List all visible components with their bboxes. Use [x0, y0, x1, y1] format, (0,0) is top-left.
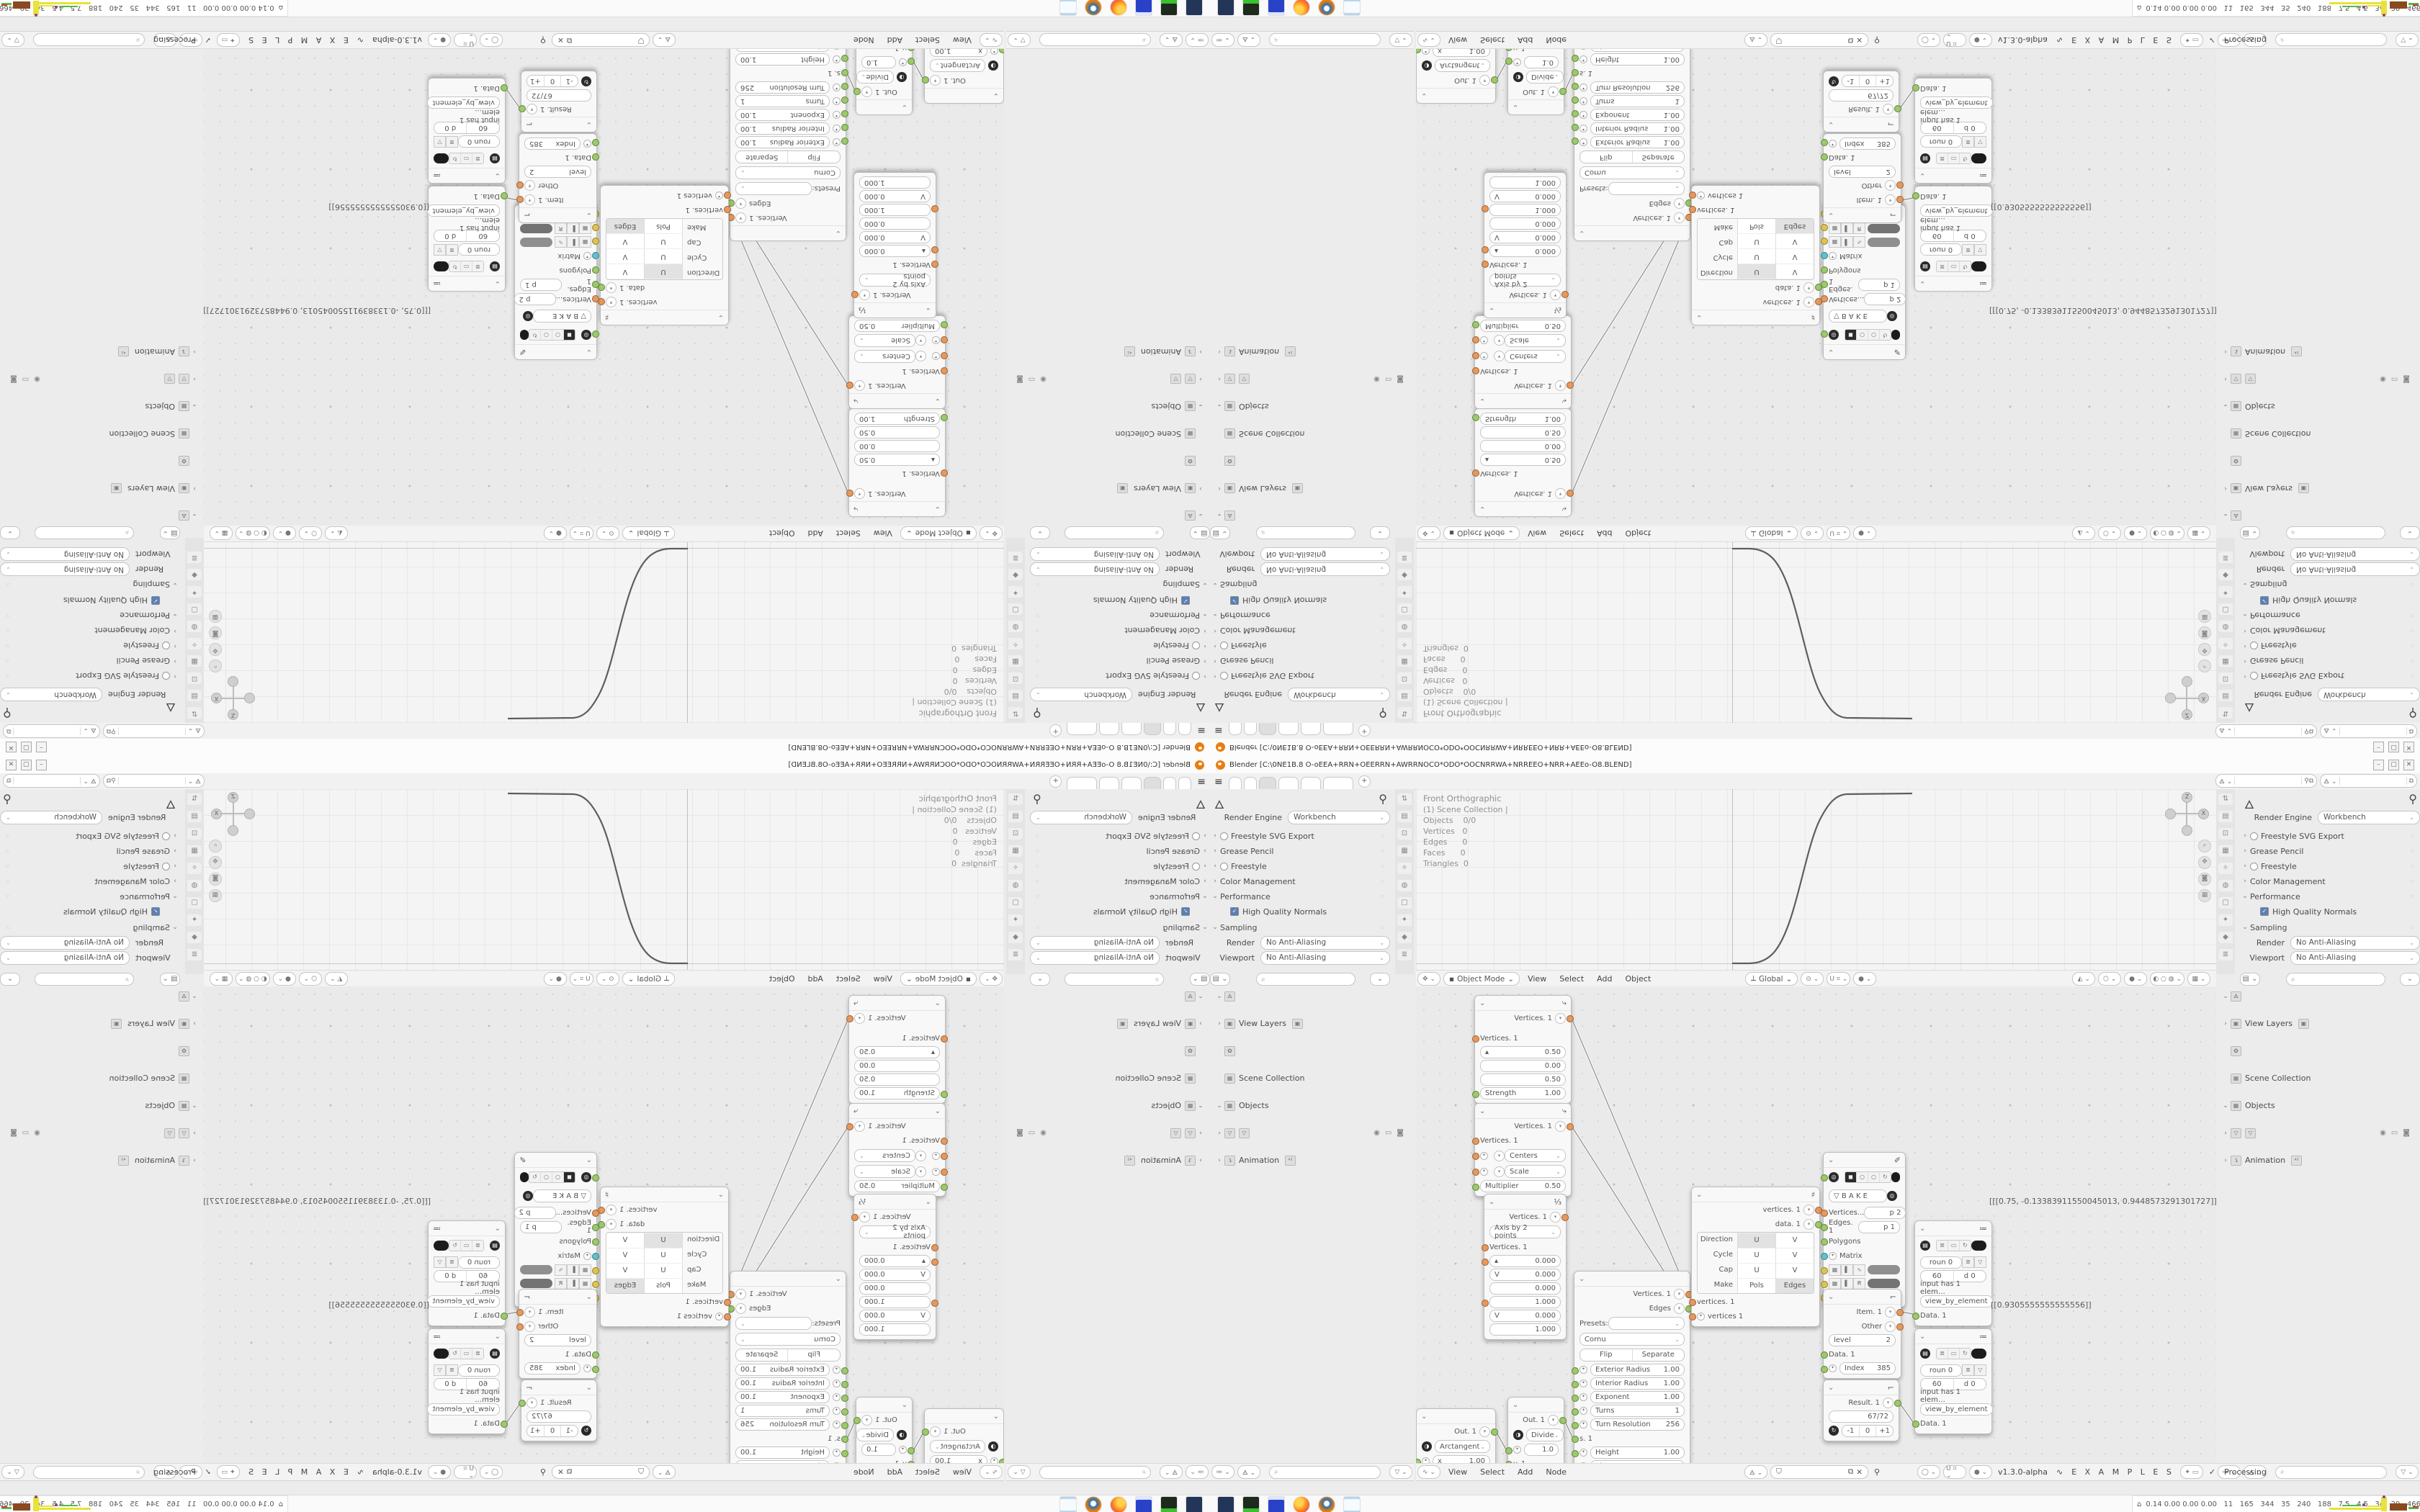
outliner-search-input[interactable]: ⌕	[1269, 1466, 1381, 1479]
node-header[interactable]: ⌄	[1574, 225, 1690, 240]
display-mode-icon[interactable]: ◎	[581, 1172, 591, 1182]
prop-value-dropdown[interactable]: No Anti-Aliasing⌄	[1260, 936, 1390, 950]
segment-button[interactable]: +1	[527, 1426, 544, 1436]
property-tab-icon[interactable]: ▤	[2218, 690, 2233, 701]
socket-green[interactable]	[853, 88, 861, 95]
split-right-value[interactable]: d 0	[434, 231, 467, 242]
outliner-row[interactable]: ›↴Animation⁴²	[1010, 345, 1206, 359]
viewport-menu-add[interactable]: Add	[802, 528, 830, 538]
number-field[interactable]: 1.000	[859, 1323, 931, 1336]
collapse-chevron-icon[interactable]: ⌄	[495, 280, 501, 288]
collapse-chevron-icon[interactable]: ⌄	[1421, 92, 1427, 100]
output-toggle-icon[interactable]: ▾	[735, 1289, 746, 1300]
socket-green[interactable]	[841, 1395, 848, 1402]
prop-section-row[interactable]: ⌄Performance⁙	[1030, 609, 1210, 622]
property-tab-icon[interactable]: ▢	[1397, 603, 1412, 615]
workspace-tab-4[interactable]	[1121, 723, 1142, 735]
node-header[interactable]: ⌄≔	[1915, 276, 1991, 291]
node-editor-canvas[interactable]: ⌄⤷Vertices. 1▾Vertices. 1▴0.500.000.50St…	[204, 32, 1004, 526]
output-toggle-icon[interactable]: ▾	[1550, 290, 1561, 301]
overlay-toggle-icons[interactable]: ✦ ▭	[217, 1465, 240, 1479]
shading-icon[interactable]: ⬡ ⌄	[2098, 526, 2121, 540]
enum-dropdown[interactable]: Cornu⌄	[735, 1333, 841, 1346]
datablock-widget-1[interactable]: 🜁 ⌄⚲⧉	[103, 724, 205, 738]
render-engine-dropdown[interactable]: Workbench⌄	[2318, 688, 2420, 702]
icon-button[interactable]: ↻	[449, 261, 461, 271]
outliner-row[interactable]: ›↴Animation⁴²	[4, 1153, 200, 1167]
node-header[interactable]: ⌄⤷	[1475, 501, 1571, 516]
number-field[interactable]: Interior Radius1.00	[735, 1377, 830, 1390]
workspace-tab-1[interactable]	[1178, 723, 1191, 735]
node-run2[interactable]: ⌄≔▤≣▭↻roun 0≣▽60d 0input has 1 elem…view…	[428, 1328, 506, 1434]
text-pill[interactable]: view_by_element	[1920, 97, 1993, 109]
collapse-chevron-icon[interactable]: ⌄	[1919, 1225, 1925, 1233]
node-header[interactable]: ⌄⤷	[1475, 996, 1571, 1011]
gizmo-axis-ball[interactable]	[244, 693, 255, 703]
bake-button[interactable]: ▽ B A K E	[533, 1189, 591, 1202]
outliner-row[interactable]: ›▽▽◉▭◙	[1214, 372, 1410, 386]
icon-button[interactable]: ○	[1868, 1172, 1879, 1182]
icon-button[interactable]: ▭	[461, 1241, 472, 1251]
node-header[interactable]: ⌄✐	[1824, 1153, 1905, 1168]
property-tab-icon[interactable]: ≣	[1397, 949, 1412, 960]
node-result[interactable]: ⌄⌐Result. 1▾67/72↻-10+1	[1823, 71, 1899, 132]
node-run1[interactable]: ⌄≔▤≣▭↻roun 0≣▽60d 0input has 1 elem…view…	[1914, 1220, 1992, 1326]
icon-button[interactable]: ▭	[1948, 1349, 1959, 1359]
enum-dropdown[interactable]: ⌄	[735, 182, 812, 195]
icon-button[interactable]: ▭	[1948, 153, 1959, 163]
socket-green[interactable]	[592, 266, 599, 274]
node-header[interactable]: ⌄♯	[1692, 1187, 1819, 1202]
output-toggle-icon[interactable]: ▾	[1674, 1303, 1685, 1314]
socket-green[interactable]	[519, 105, 526, 112]
prop-value-dropdown[interactable]: No Anti-Aliasing⌄	[1260, 563, 1390, 577]
snap-icon[interactable]: ● ⌄	[1853, 972, 1876, 986]
display-mode-icon[interactable]: ▤ ⌄	[1210, 526, 1230, 539]
toggle-icon[interactable]: ▾	[1494, 1151, 1505, 1161]
visibility-icon[interactable]: ▭	[1028, 375, 1035, 383]
snap-icon[interactable]: ⊙ ⌄	[596, 972, 619, 986]
output-toggle-icon[interactable]: ▾	[1885, 1321, 1896, 1332]
node-menu-node[interactable]: Node	[847, 35, 881, 45]
input-pill-field[interactable]: p 1	[1858, 279, 1900, 292]
node-cornu[interactable]: ⌄Vertices. 1▾Edges▾Presets: ⌄Cornu⌄FlipS…	[730, 1271, 846, 1480]
node-result[interactable]: ⌄⌐Result. 1▾67/72↻-10+1	[1823, 1380, 1899, 1441]
workspace-tab-3[interactable]	[1259, 723, 1276, 735]
socket-green[interactable]	[1572, 1408, 1579, 1416]
render-engine-dropdown[interactable]: Workbench⌄	[1288, 811, 1390, 824]
snap-icon[interactable]: ◯ ⌄	[1917, 33, 1940, 47]
gray-color-bar[interactable]	[520, 238, 552, 247]
maximize-button[interactable]: ▢	[21, 760, 32, 770]
copy-icon[interactable]: ⧉	[2409, 728, 2414, 735]
node-axis2p[interactable]: ⌄⅓Vertices. 1▾Axis by 2 points⌄Vertices.…	[1484, 1194, 1567, 1340]
segment-button[interactable]: 0	[1860, 76, 1877, 87]
output-toggle-icon[interactable]: ▾	[1885, 1307, 1896, 1318]
viewport-side-button[interactable]: ✥	[209, 856, 222, 869]
editor-type-icon[interactable]: ∿ ⌄	[1417, 33, 1440, 47]
prop-value-dropdown[interactable]: No Anti-Aliasing⌄	[1030, 563, 1160, 577]
socket-green[interactable]	[1912, 1313, 1919, 1320]
number-field[interactable]: 1.000	[1489, 1323, 1561, 1336]
color-swatch-black[interactable]	[1971, 1241, 1986, 1251]
property-tab-icon[interactable]: ▢	[187, 897, 202, 909]
outliner-row[interactable]: ›▣View Layers▣	[2220, 482, 2416, 495]
spinner-up-icon[interactable]: ▴	[1485, 1048, 1489, 1056]
node-hash[interactable]: ⌄♯vertices. 1▾data. 1▾DirectionUVCycleUV…	[1691, 1187, 1820, 1327]
property-tab-icon[interactable]: ▤	[1008, 811, 1023, 822]
orientation-dropdown[interactable]: ⟂Global⌄	[622, 526, 675, 540]
node-align[interactable]: ⌄⤷Vertices. 1▾Vertices. 1✦▾Centers⌄✦▾Sca…	[848, 315, 946, 409]
property-tab-icon[interactable]: ▢	[2218, 897, 2233, 909]
shading-icon[interactable]: ▦ ⌄	[2187, 972, 2210, 986]
socket-green[interactable]	[907, 58, 915, 66]
collapse-chevron-icon[interactable]: ⌄	[495, 1333, 501, 1341]
number-field[interactable]: Exponent1.00	[1590, 109, 1685, 121]
split-left-value[interactable]: 60	[1921, 123, 1954, 134]
workspace-tab-5[interactable]	[1301, 723, 1321, 735]
visibility-icon[interactable]: ▭	[2391, 375, 2398, 383]
socket-cyan[interactable]	[1821, 1253, 1828, 1260]
property-tab-icon[interactable]: ◆	[2218, 569, 2233, 580]
funnel-filter-icon[interactable]: ▽ ⌄	[1, 33, 24, 47]
section-toggle-circle[interactable]	[1220, 863, 1228, 870]
segment-button[interactable]: -1	[560, 1426, 578, 1436]
pin-icon[interactable]: ⚲	[1033, 708, 1041, 720]
property-tab-icon[interactable]: ✧	[187, 863, 202, 874]
node-falloff[interactable]: ⌄⤷Vertices. 1▾Vertices. 1▴0.500.000.50St…	[848, 995, 946, 1104]
taskbar-icon-blender[interactable]	[1085, 1496, 1102, 1512]
number-field[interactable]: ▴0.000	[859, 245, 931, 257]
outliner-row[interactable]: ✿	[4, 454, 200, 468]
render-engine-dropdown[interactable]: Workbench⌄	[1030, 811, 1132, 824]
toggle-icon[interactable]: ▾	[915, 1166, 926, 1177]
viewport-side-button[interactable]: ✥	[209, 643, 222, 656]
outliner-filter-type-icon[interactable]: 🜁 ⌄	[1237, 33, 1260, 47]
viewport-menu-view[interactable]: View	[1521, 974, 1553, 984]
icon-button[interactable]: ○	[1856, 330, 1868, 340]
maximize-button[interactable]: ▢	[2388, 760, 2399, 770]
pill-trail-icon[interactable]: ▽	[434, 136, 446, 148]
viewport-menu-select[interactable]: Select	[1553, 528, 1590, 538]
node-menu-node[interactable]: Node	[1539, 1467, 1573, 1477]
pill-trail-icon[interactable]: ▽	[1974, 1256, 1986, 1268]
outliner-search-input[interactable]: ⌕	[33, 34, 145, 47]
output-toggle-icon[interactable]: ▾	[1548, 1415, 1559, 1426]
socket-orange[interactable]	[941, 1153, 948, 1160]
node-menu-view[interactable]: View	[1442, 35, 1474, 45]
node-header[interactable]: ⌄	[1508, 1398, 1564, 1413]
snap-icon[interactable]: U ⌗ ⌄	[1827, 972, 1850, 986]
workspace-tab-1[interactable]	[1229, 723, 1242, 735]
number-field[interactable]: 1.000	[1489, 176, 1561, 189]
node-header[interactable]: ⌄⅓	[1484, 302, 1566, 318]
socket-orange[interactable]	[516, 196, 524, 203]
node-tree-name-field[interactable]: ⛉⧉✕	[552, 1465, 650, 1479]
gizmo-axis-ball[interactable]	[2165, 809, 2176, 819]
node-run2[interactable]: ⌄≔▤≣▭↻roun 0≣▽60d 0input has 1 elem…view…	[1914, 1328, 1992, 1434]
number-field[interactable]: Height1.00	[1590, 1446, 1685, 1459]
close-button[interactable]: ✕	[2403, 760, 2414, 770]
outliner-row[interactable]: ⌄🜁	[1214, 509, 1410, 523]
snap-icon[interactable]: ● ⌄	[544, 972, 567, 986]
output-toggle-icon[interactable]: ▾	[854, 381, 865, 392]
property-tab-icon[interactable]: ⇅	[2218, 793, 2233, 805]
outliner-row[interactable]: ›↴Animation⁴²	[1010, 1153, 1206, 1167]
outliner-filter-type-icon[interactable]: 🜁 ⌄	[1237, 1465, 1260, 1479]
output-toggle-icon[interactable]: ▾	[854, 489, 865, 500]
output-toggle-icon[interactable]: ▾	[1803, 297, 1814, 308]
uv-option-table[interactable]: DirectionUVCycleUVCapUVMakePolsEdges	[606, 218, 723, 280]
output-toggle-icon[interactable]: ▾	[735, 213, 746, 224]
gray-color-bar[interactable]	[520, 1265, 552, 1274]
socket-green[interactable]	[1572, 1395, 1579, 1402]
outliner-filter-type-icon[interactable]: 🜁 ⌄	[1160, 33, 1183, 47]
copy-icon[interactable]: ⧉	[6, 728, 11, 735]
prop-section-row[interactable]: ›Color Management⁙	[0, 875, 180, 888]
viewport-side-button[interactable]: ⌕	[209, 840, 222, 852]
enum-dropdown[interactable]: Cornu⌄	[735, 166, 841, 179]
number-field[interactable]: 1.000	[859, 1296, 931, 1308]
toggle-button[interactable]: Flip	[788, 1349, 841, 1361]
table-option-u[interactable]: U	[1737, 1233, 1775, 1248]
display-mode-icon[interactable]: ▤	[1920, 1241, 1930, 1251]
prop-section-row[interactable]: ›Freestyle⁙	[2240, 860, 2420, 873]
close-button[interactable]: ✕	[6, 760, 17, 770]
shading-icon[interactable]: ● ⌄	[2124, 526, 2147, 540]
socket-green[interactable]	[841, 1381, 848, 1388]
number-field[interactable]: ▴0.000	[1489, 245, 1561, 257]
outliner-row[interactable]: ⌄▦Objects	[2220, 400, 2416, 413]
prop-section-row[interactable]: ›Grease Pencil⁙	[1030, 845, 1210, 858]
spinner-up-icon[interactable]: ▴	[922, 1257, 926, 1265]
property-tab-icon[interactable]: ◍	[1397, 621, 1412, 632]
socket-green[interactable]	[592, 1366, 599, 1373]
table-option-v[interactable]: V	[606, 1248, 645, 1263]
navigation-gizmo[interactable]: ZX	[212, 792, 255, 835]
pin-icon[interactable]: ⚲	[2304, 728, 2309, 735]
viewport-menu-add[interactable]: Add	[1590, 974, 1618, 984]
visibility-icon[interactable]: ▭	[1028, 1129, 1035, 1137]
prop-value-dropdown[interactable]: No Anti-Aliasing⌄	[0, 951, 130, 965]
prop-value-dropdown[interactable]: No Anti-Aliasing⌄	[1260, 951, 1390, 965]
split-field[interactable]: 60d 0	[1920, 230, 1986, 243]
outliner-search-input[interactable]: ⌕	[2275, 34, 2387, 47]
node-item[interactable]: ⌄⌐Item. 1▾Other▾level2Data. 1✦Index385	[519, 133, 597, 223]
icon-button[interactable]: ○	[1868, 330, 1879, 340]
node-header[interactable]: ⌄	[730, 225, 846, 240]
workspace-tab-2[interactable]	[1163, 723, 1176, 735]
outliner-row[interactable]: ›▣View Layers▣	[1214, 482, 1410, 495]
attribute-icon[interactable]: ▦	[579, 1278, 591, 1290]
property-tab-icon[interactable]: ⇅	[187, 707, 202, 719]
display-mode-icon[interactable]: ▤ ⌄	[160, 526, 180, 539]
text-pill[interactable]: view_by_element	[427, 97, 500, 109]
outliner-row[interactable]: ✿	[2220, 454, 2416, 468]
ring-icon[interactable]: ◎	[523, 1191, 533, 1201]
outliner-row[interactable]: ›▣View Layers▣	[1214, 1017, 1410, 1030]
datablock-widget-2[interactable]: 🜁 ⌄⧉	[2320, 774, 2417, 788]
socket-orange[interactable]	[1567, 490, 1574, 497]
options-chevron-icon[interactable]: ⌄	[1370, 973, 1390, 986]
checkbox-checked-icon[interactable]: ✓	[1181, 907, 1190, 916]
display-mode-icon[interactable]: ▤ ⌄	[1190, 526, 1210, 539]
icon-button[interactable]: ≣	[1937, 1349, 1948, 1359]
table-option-u[interactable]: Pols	[645, 1278, 683, 1293]
visibility-icon[interactable]: ▭	[1385, 375, 1391, 383]
taskbar-icon-firefox[interactable]	[1110, 0, 1127, 16]
display-mode-icon[interactable]: ▤ ⌄	[1210, 973, 1230, 986]
outliner-row[interactable]: ›↴Animation⁴²	[2220, 1153, 2416, 1167]
collapse-chevron-icon[interactable]: ⌄	[1512, 1401, 1518, 1409]
outliner-row[interactable]: ✿	[1214, 1044, 1410, 1058]
render-engine-dropdown[interactable]: Workbench⌄	[1288, 688, 1390, 702]
outliner-row[interactable]: ⌄▦Objects	[4, 400, 200, 413]
icon-button[interactable]: ○	[541, 330, 552, 340]
node-result[interactable]: ⌄⌐Result. 1▾67/72↻-10+1	[521, 71, 597, 132]
socket-orange[interactable]	[1482, 247, 1489, 254]
attribute-icon[interactable]: ▦	[579, 237, 591, 248]
node-run1[interactable]: ⌄≔▤≣▭↻roun 0≣▽60d 0input has 1 elem…view…	[428, 186, 506, 292]
outliner-row[interactable]: ›▽▽◉▭◙	[4, 1126, 200, 1140]
socket-orange[interactable]	[516, 1323, 524, 1331]
copy-icon[interactable]: ⧉	[2309, 728, 2313, 735]
viewport-menu-select[interactable]: Select	[830, 974, 867, 984]
visibility-icon[interactable]: ◉	[1373, 375, 1380, 383]
node-header[interactable]: ⌄⌐	[1824, 117, 1899, 132]
output-toggle-icon[interactable]: ▾	[1885, 195, 1896, 206]
taskbar-icon-terminal[interactable]	[1242, 0, 1260, 16]
workspace-tab-6[interactable]	[1067, 723, 1097, 735]
socket-orange[interactable]	[592, 295, 599, 302]
section-toggle-circle[interactable]	[1220, 832, 1228, 840]
socket-orange[interactable]	[1689, 206, 1696, 213]
number-field[interactable]: 1.0	[1524, 1444, 1559, 1456]
enum-dropdown[interactable]: ⌄	[1608, 1317, 1685, 1330]
widget-field[interactable]	[13, 777, 81, 785]
pin-icon[interactable]: ⚲	[536, 35, 550, 45]
section-toggle-circle[interactable]	[1220, 642, 1228, 650]
socket-orange[interactable]	[1472, 1153, 1479, 1160]
number-field[interactable]: Multiplier0.50	[854, 320, 940, 332]
toggle-icon[interactable]: ▾	[915, 1151, 926, 1161]
toggle-button[interactable]: Flip	[788, 151, 841, 163]
viewport-menu-view[interactable]: View	[1521, 528, 1553, 538]
enum-dropdown[interactable]: ⌄	[735, 1317, 812, 1330]
socket-orange[interactable]	[851, 291, 859, 298]
icon-button[interactable]: ≣	[472, 153, 483, 163]
socket-green[interactable]	[1821, 1351, 1828, 1359]
socket-orange[interactable]	[1896, 181, 1904, 189]
pill-trail-icon[interactable]: ≣	[446, 136, 458, 148]
socket-green[interactable]	[1821, 1174, 1828, 1182]
section-toggle-circle[interactable]	[2250, 672, 2258, 680]
node-editor-canvas[interactable]: ⌄⤷Vertices. 1▾Vertices. 1▴0.500.000.50St…	[1416, 32, 2216, 526]
prop-section-row[interactable]: ⌄Sampling⁙	[2240, 921, 2420, 934]
socket-green[interactable]	[1572, 1436, 1579, 1443]
prop-section-row[interactable]: ›Grease Pencil⁙	[1210, 654, 1390, 667]
overlay-toggle-icons[interactable]: ✦ ▭	[2180, 33, 2203, 47]
ring-icon[interactable]: ◎	[1887, 1191, 1897, 1201]
cycle-icon[interactable]: ↻	[1829, 76, 1839, 86]
pill-trail-icon[interactable]: ▽	[1974, 244, 1986, 256]
datablock-widget-1[interactable]: 🜁 ⌄⚲⧉	[2215, 724, 2317, 738]
pin-icon[interactable]: ⚲	[111, 728, 116, 735]
socket-orange[interactable]	[1472, 1035, 1479, 1043]
outliner-row[interactable]: ›▽▽◉▭◙	[2220, 1126, 2416, 1140]
prop-value-dropdown[interactable]: No Anti-Aliasing⌄	[1260, 548, 1390, 562]
prop-section-row[interactable]: ›Grease Pencil⁙	[1030, 654, 1210, 667]
number-field[interactable]: Turn Resolution256	[735, 1418, 830, 1431]
snap-icon[interactable]: ● ⌄	[428, 33, 451, 47]
number-field[interactable]: Strength1.00	[1480, 1087, 1566, 1099]
prop-section-row[interactable]: ›Freestyle SVG Export⁙	[1210, 829, 1390, 842]
display-mode-icon[interactable]: ▤	[490, 1349, 500, 1359]
color-swatch-black[interactable]	[520, 1172, 529, 1182]
property-tab-icon[interactable]: ≣	[2218, 949, 2233, 960]
number-field[interactable]: Turns1	[1590, 1405, 1685, 1417]
close-button[interactable]: ✕	[2403, 742, 2414, 753]
viewport-menu-object[interactable]: Object	[763, 528, 802, 538]
number-field[interactable]: V0.000	[859, 1269, 931, 1281]
enum-dropdown[interactable]: Centers⌄	[1505, 1149, 1566, 1162]
outliner-row[interactable]: ⌄▦Objects	[1214, 400, 1410, 413]
outliner-row[interactable]: ⌄🜁	[2220, 509, 2416, 523]
number-field[interactable]: Exponent1.00	[735, 1391, 830, 1403]
socket-green[interactable]	[1821, 140, 1828, 147]
outliner-row[interactable]: ⌄🜁	[2220, 989, 2416, 1003]
display-mode-icon[interactable]: ▤ ⌄	[2240, 526, 2260, 539]
attribute-icon[interactable]: ∿	[555, 237, 567, 248]
outliner-search-input[interactable]: ⌕	[1039, 34, 1151, 47]
number-field[interactable]: level2	[1829, 166, 1896, 178]
table-option-v[interactable]: V	[606, 234, 645, 249]
number-field[interactable]: Index385	[1839, 138, 1896, 150]
outliner-row[interactable]: ⌄🜁	[4, 989, 200, 1003]
socket-green[interactable]	[501, 1421, 508, 1428]
socket-green[interactable]	[1821, 1224, 1828, 1231]
collapse-chevron-icon[interactable]: ⌄	[1828, 348, 1834, 356]
icon-button[interactable]: ↻	[1879, 1172, 1891, 1182]
prop-section-row[interactable]: ›Grease Pencil⁙	[0, 845, 180, 858]
node-divide[interactable]: ⌄Out. 1▾◑Divide⌄✦1.0y. 1	[1507, 37, 1564, 115]
number-field[interactable]: 0.00	[1480, 1060, 1566, 1072]
collapse-chevron-icon[interactable]: ⌄	[1579, 1275, 1585, 1283]
outliner-row[interactable]: ›▣View Layers▣	[4, 1017, 200, 1030]
collapse-chevron-icon[interactable]: ⌄	[835, 230, 841, 238]
socket-orange[interactable]	[941, 1169, 948, 1176]
widget-field[interactable]	[2234, 727, 2302, 735]
property-tab-icon[interactable]: ⊡	[1397, 828, 1412, 840]
funnel-filter-icon[interactable]: ▽ ⌄	[1, 1465, 24, 1479]
table-option-u[interactable]: U	[645, 249, 683, 264]
prop-section-row[interactable]: ›Color Management⁙	[2240, 875, 2420, 888]
socket-orange[interactable]	[724, 206, 731, 213]
collapse-chevron-icon[interactable]: ⌄	[1919, 172, 1925, 180]
socket-green[interactable]	[1572, 111, 1579, 118]
socket-green[interactable]	[1505, 58, 1512, 66]
minimize-button[interactable]: –	[2373, 760, 2384, 770]
snap-icon[interactable]: ⊙ ⌄	[596, 526, 619, 540]
pin-icon[interactable]: ⚲	[3, 708, 12, 720]
gray-color-bar[interactable]	[520, 224, 552, 233]
segment-button[interactable]: -1	[1842, 76, 1860, 87]
property-tab-icon[interactable]: ⇅	[1008, 793, 1023, 805]
display-mode-icon[interactable]: ▤	[1920, 1349, 1930, 1359]
funnel-filter-icon[interactable]: ▽ ⌄	[1008, 33, 1031, 47]
table-option-u[interactable]: U	[645, 1248, 683, 1263]
text-pill[interactable]: view_by_element	[1920, 1295, 1993, 1308]
